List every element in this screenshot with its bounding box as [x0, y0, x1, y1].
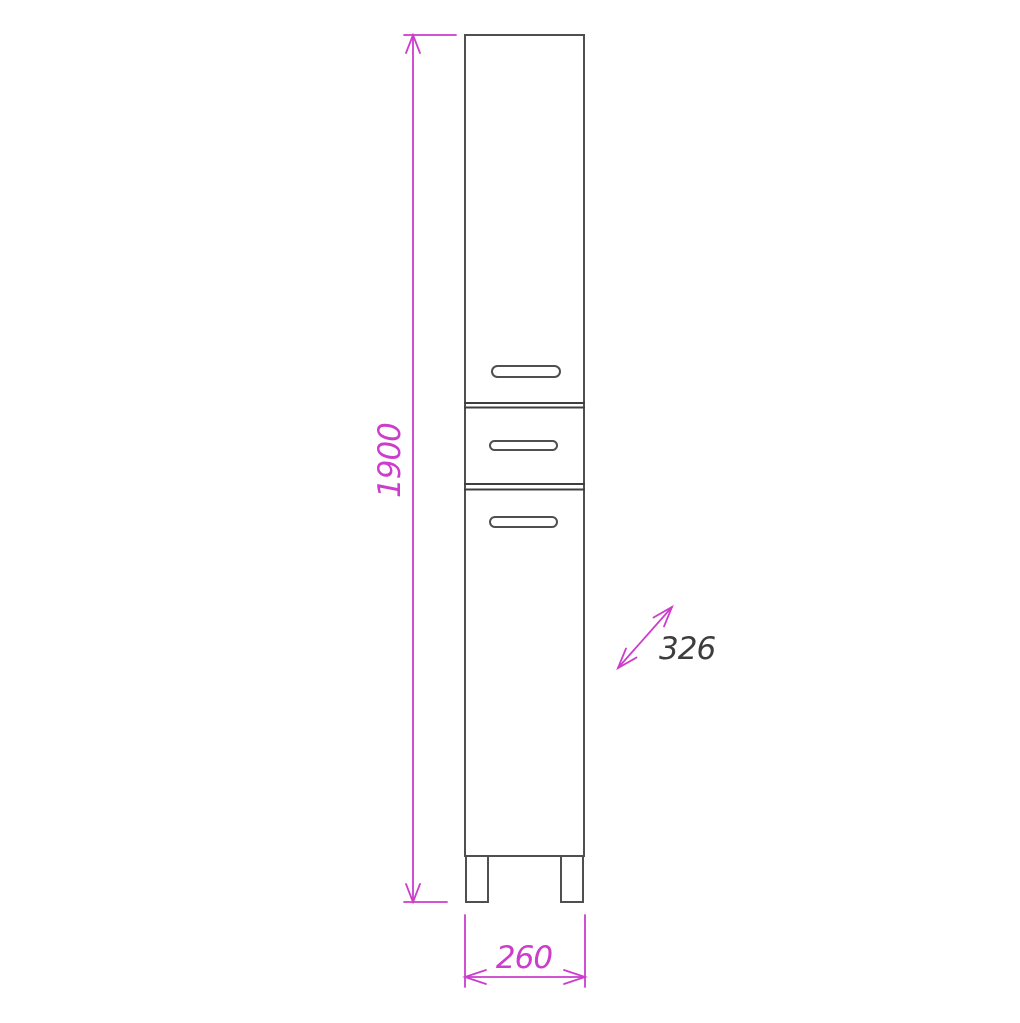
depth-dimension-label: 326: [659, 631, 715, 667]
cabinet-outline: [465, 35, 584, 856]
cabinet-elevation-drawing: 1900 260 326: [0, 0, 1020, 1023]
lower-door-handle: [490, 517, 557, 527]
cabinet: [465, 35, 584, 902]
upper-door-handle: [492, 366, 560, 377]
height-dimension-label: 1900: [372, 423, 408, 498]
technical-drawing-canvas: 1900 260 326: [0, 0, 1020, 1023]
left-leg: [466, 856, 488, 902]
width-dimension-label: 260: [496, 940, 552, 976]
drawer-handle: [490, 441, 557, 450]
height-dimension: [404, 35, 456, 902]
right-leg: [561, 856, 583, 902]
